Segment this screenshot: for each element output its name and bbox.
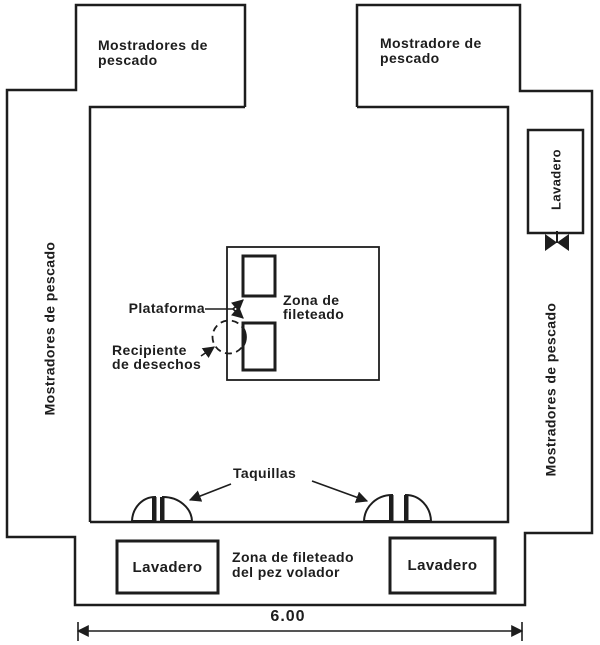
lockers-left-pair (132, 497, 192, 521)
filleting-zone-label: Zona de fileteado (283, 293, 344, 321)
left-counter-label: Mostradores de pescado (43, 229, 58, 429)
lockers-label: Taquillas (233, 466, 296, 481)
platform-top (243, 256, 275, 296)
fish-market-floor-plan: Mostradores de pescado Mostradore de pes… (0, 0, 600, 645)
waste-container-arrow (201, 347, 214, 356)
right-counter-label: Mostradores de pescado (544, 290, 559, 490)
right-sink-label: Lavadero (549, 130, 564, 230)
waste-container-circle (213, 321, 246, 354)
bottom-right-sink-label: Lavadero (390, 538, 495, 593)
flying-fish-zone-label: Zona de fileteado del pez volador (232, 550, 354, 580)
lockers-arrows (190, 481, 367, 501)
waste-container-label: Recipiente de desechos (112, 343, 201, 371)
dimension-value: 6.00 (258, 609, 318, 624)
platform-leader (205, 300, 243, 318)
bottom-left-sink-label: Lavadero (117, 541, 218, 593)
platform-label: Plataforma (121, 301, 205, 316)
top-left-counter-label: Mostradores de pescado (98, 38, 208, 68)
lockers-right-pair (364, 495, 431, 521)
platform-bottom (243, 323, 275, 370)
top-right-counter-label: Mostradore de pescado (380, 36, 482, 66)
